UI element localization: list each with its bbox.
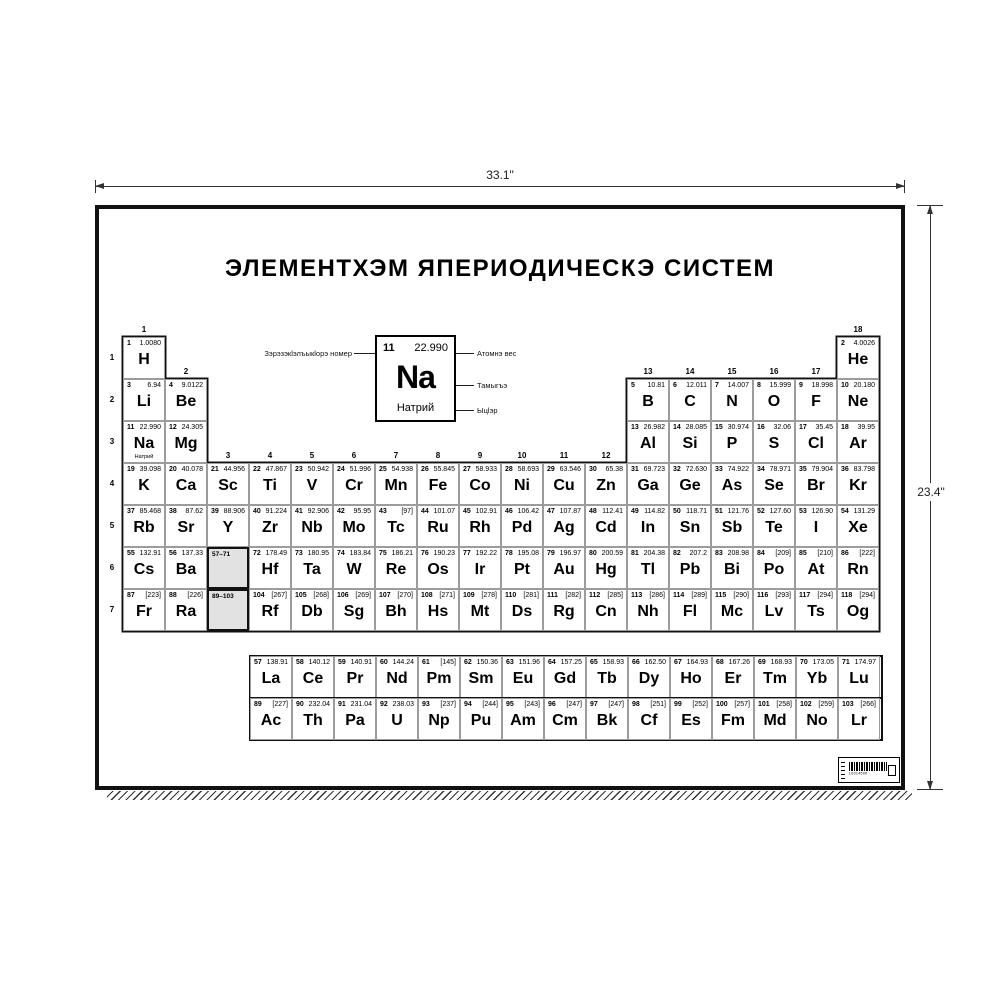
period-label: 3 — [105, 437, 119, 446]
element-symbol: Ir — [460, 561, 500, 579]
atomic-mass: 192.22 — [476, 550, 497, 557]
element-cell-si: 1428.085Si — [669, 421, 711, 463]
atomic-mass: [286] — [649, 592, 665, 599]
atomic-mass: 44.956 — [224, 466, 245, 473]
atomic-number: 41 — [295, 508, 303, 515]
element-symbol: Ne — [838, 393, 878, 411]
element-symbol: H — [124, 351, 164, 369]
element-symbol: No — [797, 712, 837, 730]
element-cell-ni: 2858.693Ni — [501, 463, 543, 505]
element-symbol: La — [251, 670, 291, 688]
group-label: 10 — [501, 451, 543, 460]
atomic-mass: 65.38 — [605, 466, 623, 473]
atomic-number: 72 — [253, 550, 261, 557]
atomic-number: 7 — [715, 382, 719, 389]
atomic-number: 35 — [799, 466, 807, 473]
element-cell-zr: 4091.224Zr — [249, 505, 291, 547]
atomic-mass: 106.42 — [518, 508, 539, 515]
element-cell-fe: 2655.845Fe — [417, 463, 459, 505]
dimension-line — [95, 186, 905, 187]
actinide-row: 89[227]Ac90232.04Th91231.04Pa92238.03U93… — [249, 697, 883, 741]
atomic-mass: 112.41 — [602, 508, 623, 515]
group-label: 16 — [753, 367, 795, 376]
atomic-mass: [278] — [481, 592, 497, 599]
dimension-width: 33.1" — [95, 168, 905, 198]
element-cell-la: 57138.91La — [250, 656, 292, 698]
atomic-mass: [145] — [440, 659, 456, 666]
atomic-number: 32 — [673, 466, 681, 473]
element-symbol: Hg — [586, 561, 626, 579]
atomic-number: 71 — [842, 659, 850, 666]
atomic-mass: [237] — [440, 701, 456, 708]
element-cell-pm: 61[145]Pm — [418, 656, 460, 698]
dimension-height-label: 23.4" — [908, 483, 954, 501]
element-symbol: Zn — [586, 477, 626, 495]
group-label: 1 — [123, 325, 165, 334]
atomic-number: 9 — [799, 382, 803, 389]
atomic-number: 10 — [841, 382, 849, 389]
atomic-mass: 208.98 — [728, 550, 749, 557]
atomic-mass: [293] — [775, 592, 791, 599]
atomic-mass: 200.59 — [602, 550, 623, 557]
atomic-number: 56 — [169, 550, 177, 557]
element-cell-ag: 47107.87Ag — [543, 505, 585, 547]
poster-title: ЭЛЕМЕНТХЭМ ЯПЕРИОДИЧЕСКЭ СИСТЕМ — [99, 255, 901, 283]
element-symbol: I — [796, 519, 836, 537]
element-symbol: P — [712, 435, 752, 453]
element-symbol: Pb — [670, 561, 710, 579]
atomic-number: 42 — [337, 508, 345, 515]
atomic-number: 102 — [800, 701, 812, 708]
element-cell-au: 79196.97Au — [543, 547, 585, 589]
element-symbol: Db — [292, 603, 332, 621]
atomic-number: 76 — [421, 550, 429, 557]
element-symbol: Sn — [670, 519, 710, 537]
atomic-number: 38 — [169, 508, 177, 515]
atomic-mass: 92.906 — [308, 508, 329, 515]
atomic-number: 49 — [631, 508, 639, 515]
atomic-mass: 95.95 — [353, 508, 371, 515]
atomic-number: 116 — [757, 592, 768, 599]
element-symbol: In — [628, 519, 668, 537]
element-cell-nd: 60144.24Nd — [376, 656, 418, 698]
element-symbol: Ba — [166, 561, 206, 579]
element-cell-sm: 62150.36Sm — [460, 656, 502, 698]
element-symbol: Ce — [293, 670, 333, 688]
atomic-number: 114 — [673, 592, 684, 599]
atomic-mass: 174.97 — [855, 659, 876, 666]
element-cell-pa: 91231.04Pa — [334, 698, 376, 740]
atomic-number: 44 — [421, 508, 429, 515]
atomic-number: 73 — [295, 550, 303, 557]
atomic-mass: [244] — [482, 701, 498, 708]
element-symbol: Si — [670, 435, 710, 453]
atomic-mass: 151.96 — [519, 659, 540, 666]
atomic-number: 21 — [211, 466, 219, 473]
atomic-number: 99 — [674, 701, 682, 708]
element-cell-yb: 70173.05Yb — [796, 656, 838, 698]
atomic-mass: [289] — [691, 592, 707, 599]
atomic-mass: 173.05 — [813, 659, 834, 666]
atomic-number: 66 — [632, 659, 640, 666]
element-cell-pd: 46106.42Pd — [501, 505, 543, 547]
atomic-mass: 150.36 — [477, 659, 498, 666]
atomic-mass: [269] — [355, 592, 371, 599]
atomic-mass: 12.011 — [686, 382, 707, 389]
period-label: 5 — [105, 521, 119, 530]
element-symbol: Ds — [502, 603, 542, 621]
element-cell-no: 102[259]No — [796, 698, 838, 740]
atomic-number: 34 — [757, 466, 765, 473]
element-symbol: F — [796, 393, 836, 411]
atomic-mass: 158.93 — [603, 659, 624, 666]
element-symbol: Os — [418, 561, 458, 579]
atomic-mass: 126.90 — [812, 508, 833, 515]
period-label: 7 — [105, 605, 119, 614]
atomic-mass: [266] — [860, 701, 876, 708]
atomic-number: 75 — [379, 550, 387, 557]
atomic-mass: 140.12 — [309, 659, 330, 666]
atomic-number: 83 — [715, 550, 723, 557]
atomic-number: 69 — [758, 659, 766, 666]
element-cell-be: 49.0122Be — [165, 379, 207, 421]
element-cell-ac: 89[227]Ac — [250, 698, 292, 740]
atomic-number: 79 — [547, 550, 555, 557]
group-label: 8 — [417, 451, 459, 460]
arrow-down-icon — [927, 781, 933, 790]
element-symbol: Zr — [250, 519, 290, 537]
element-cell-gd: 64157.25Gd — [544, 656, 586, 698]
element-symbol: Fm — [713, 712, 753, 730]
element-cell-rn: 86[222]Rn — [837, 547, 879, 589]
element-symbol: Ga — [628, 477, 668, 495]
atomic-mass: [257] — [734, 701, 750, 708]
element-symbol: Og — [838, 603, 878, 621]
element-cell-u: 92238.03U — [376, 698, 418, 740]
element-symbol: Rn — [838, 561, 878, 579]
lanthanide-row: 57138.91La58140.12Ce59140.91Pr60144.24Nd… — [249, 655, 883, 699]
element-cell-sb: 51121.76Sb — [711, 505, 753, 547]
element-cell-nb: 4192.906Nb — [291, 505, 333, 547]
element-cell-md: 101[258]Md — [754, 698, 796, 740]
element-symbol: Bh — [376, 603, 416, 621]
element-cell-zn: 3065.38Zn — [585, 463, 627, 505]
atomic-mass: 10.81 — [647, 382, 665, 389]
element-cell-dy: 66162.50Dy — [628, 656, 670, 698]
element-symbol: Tc — [376, 519, 416, 537]
group-label: 15 — [711, 367, 753, 376]
element-cell-er: 68167.26Er — [712, 656, 754, 698]
atomic-mass: 87.62 — [185, 508, 203, 515]
element-cell-ga: 3169.723Ga — [627, 463, 669, 505]
atomic-mass: [290] — [733, 592, 749, 599]
element-symbol: Yb — [797, 670, 837, 688]
atomic-number: 113 — [631, 592, 642, 599]
element-symbol: W — [334, 561, 374, 579]
element-cell-ti: 2247.867Ti — [249, 463, 291, 505]
element-symbol: Nd — [377, 670, 417, 688]
atomic-number: 88 — [169, 592, 177, 599]
element-symbol: Li — [124, 393, 164, 411]
atomic-number: 43 — [379, 508, 387, 515]
atomic-number: 33 — [715, 466, 723, 473]
atomic-mass: [209] — [775, 550, 791, 557]
element-cell-re: 75186.21Re — [375, 547, 417, 589]
atomic-mass: 35.45 — [815, 424, 833, 431]
atomic-number: 36 — [841, 466, 849, 473]
element-symbol: Eu — [503, 670, 543, 688]
atomic-number: 57 — [254, 659, 262, 666]
element-cell-ra: 88[226]Ra — [165, 589, 207, 631]
atomic-mass: 18.998 — [812, 382, 833, 389]
atomic-mass: 114.82 — [644, 508, 665, 515]
element-cell-mn: 2554.938Mn — [375, 463, 417, 505]
atomic-number: 68 — [716, 659, 724, 666]
element-symbol: Mn — [376, 477, 416, 495]
element-symbol: Sc — [208, 477, 248, 495]
element-symbol: Sb — [712, 519, 752, 537]
atomic-mass: 140.91 — [351, 659, 372, 666]
element-cell-h: 11.0080H — [123, 337, 165, 379]
group-label: 11 — [543, 451, 585, 460]
element-cell-ru: 44101.07Ru — [417, 505, 459, 547]
group-label: 12 — [585, 451, 627, 460]
atomic-mass: 58.933 — [476, 466, 497, 473]
atomic-mass: 138.91 — [267, 659, 288, 666]
atomic-number: 53 — [799, 508, 807, 515]
element-cell-at: 85[210]At — [795, 547, 837, 589]
element-cell-pb: 82207.2Pb — [669, 547, 711, 589]
atomic-mass: [294] — [859, 592, 875, 599]
element-cell-nh: 113[286]Nh — [627, 589, 669, 631]
atomic-number: 8 — [757, 382, 761, 389]
atomic-mass: 190.23 — [434, 550, 455, 557]
element-cell-pt: 78195.08Pt — [501, 547, 543, 589]
atomic-number: 70 — [800, 659, 808, 666]
atomic-mass: [281] — [523, 592, 539, 599]
element-symbol: Cm — [545, 712, 585, 730]
poster: ЭЛЕМЕНТХЭМ ЯПЕРИОДИЧЕСКЭ СИСТЕМ 11 22.99… — [95, 205, 905, 790]
element-symbol: Nh — [628, 603, 668, 621]
element-cell-ts: 117[294]Ts — [795, 589, 837, 631]
element-symbol: Am — [503, 712, 543, 730]
atomic-mass: [226] — [187, 592, 203, 599]
atomic-mass: [294] — [817, 592, 833, 599]
element-cell-fm: 100[257]Fm — [712, 698, 754, 740]
atomic-mass: 9.0122 — [182, 382, 203, 389]
atomic-number: 18 — [841, 424, 849, 431]
element-symbol: Mo — [334, 519, 374, 537]
element-symbol: Cr — [334, 477, 374, 495]
atomic-mass: [223] — [145, 592, 161, 599]
atomic-number: 25 — [379, 466, 387, 473]
element-cell-lu: 71174.97Lu — [838, 656, 880, 698]
element-symbol: S — [754, 435, 794, 453]
atomic-mass: 83.798 — [854, 466, 875, 473]
element-cell-sr: 3887.62Sr — [165, 505, 207, 547]
placeholder-range: 89–103 — [212, 593, 234, 600]
element-symbol: Ni — [502, 477, 542, 495]
element-cell-na: 1122.990NaНатрий — [123, 421, 165, 463]
element-cell-rb: 3785.468Rb — [123, 505, 165, 547]
element-cell-bk: 97[247]Bk — [586, 698, 628, 740]
element-symbol: Es — [671, 712, 711, 730]
element-symbol: Pm — [419, 670, 459, 688]
atomic-number: 110 — [505, 592, 516, 599]
element-symbol: U — [377, 712, 417, 730]
element-symbol: Np — [419, 712, 459, 730]
element-cell-in: 49114.82In — [627, 505, 669, 547]
atomic-mass: 121.76 — [728, 508, 749, 515]
element-cell-cf: 98[251]Cf — [628, 698, 670, 740]
atomic-number: 5 — [631, 382, 635, 389]
element-cell-w: 74183.84W — [333, 547, 375, 589]
element-symbol: Se — [754, 477, 794, 495]
atomic-number: 31 — [631, 466, 639, 473]
element-symbol: Cd — [586, 519, 626, 537]
element-cell-po: 84[209]Po — [753, 547, 795, 589]
element-symbol: Ho — [671, 670, 711, 688]
atomic-number: 108 — [421, 592, 433, 599]
atomic-mass: 178.49 — [266, 550, 287, 557]
atomic-number: 50 — [673, 508, 681, 515]
element-cell-rg: 111[282]Rg — [543, 589, 585, 631]
group-label: 9 — [459, 451, 501, 460]
atomic-number: 106 — [337, 592, 349, 599]
element-symbol: Rb — [124, 519, 164, 537]
element-cell-mt: 109[278]Mt — [459, 589, 501, 631]
group-label: 18 — [837, 325, 879, 334]
atomic-number: 107 — [379, 592, 391, 599]
atomic-number: 1 — [127, 340, 131, 347]
element-symbol: Cu — [544, 477, 584, 495]
element-symbol: Pr — [335, 670, 375, 688]
element-cell-o: 815.999O — [753, 379, 795, 421]
period-label: 6 — [105, 563, 119, 572]
element-symbol: Sg — [334, 603, 374, 621]
atomic-mass: 15.999 — [770, 382, 791, 389]
atomic-mass: 39.098 — [140, 466, 161, 473]
element-cell-cm: 96[247]Cm — [544, 698, 586, 740]
element-cell-li: 36.94Li — [123, 379, 165, 421]
element-symbol: Sr — [166, 519, 206, 537]
element-symbol: Pd — [502, 519, 542, 537]
atomic-number: 29 — [547, 466, 555, 473]
element-cell-rh: 45102.91Rh — [459, 505, 501, 547]
placeholder-cell: 57–71 — [207, 547, 249, 589]
atomic-mass: [251] — [650, 701, 666, 708]
atomic-number: 45 — [463, 508, 471, 515]
atomic-mass: 162.50 — [645, 659, 666, 666]
atomic-number: 15 — [715, 424, 723, 431]
atomic-number: 103 — [842, 701, 854, 708]
element-symbol: Fl — [670, 603, 710, 621]
element-cell-og: 118[294]Og — [837, 589, 879, 631]
arrow-left-icon — [95, 183, 104, 189]
atomic-number: 81 — [631, 550, 639, 557]
arrow-right-icon — [896, 183, 905, 189]
element-cell-fl: 114[289]Fl — [669, 589, 711, 631]
atomic-mass: 186.21 — [392, 550, 413, 557]
element-symbol: As — [712, 477, 752, 495]
element-cell-rf: 104[267]Rf — [249, 589, 291, 631]
element-cell-hg: 80200.59Hg — [585, 547, 627, 589]
element-symbol: O — [754, 393, 794, 411]
element-cell-es: 99[252]Es — [670, 698, 712, 740]
atomic-number: 17 — [799, 424, 807, 431]
atomic-number: 51 — [715, 508, 723, 515]
element-symbol: Ts — [796, 603, 836, 621]
atomic-number: 94 — [464, 701, 472, 708]
atomic-number: 52 — [757, 508, 765, 515]
element-cell-i: 53126.90I — [795, 505, 837, 547]
atomic-mass: 196.97 — [560, 550, 581, 557]
atomic-mass: 32.06 — [773, 424, 791, 431]
element-symbol: Nb — [292, 519, 332, 537]
atomic-number: 80 — [589, 550, 597, 557]
atomic-number: 37 — [127, 508, 135, 515]
element-symbol: Pa — [335, 712, 375, 730]
element-cell-cr: 2451.996Cr — [333, 463, 375, 505]
atomic-mass: [258] — [776, 701, 792, 708]
element-symbol: Re — [376, 561, 416, 579]
atomic-number: 19 — [127, 466, 135, 473]
element-symbol: Xe — [838, 519, 878, 537]
atomic-number: 98 — [632, 701, 640, 708]
element-cell-hf: 72178.49Hf — [249, 547, 291, 589]
atomic-mass: 28.085 — [686, 424, 707, 431]
atomic-mass: 54.938 — [392, 466, 413, 473]
group-label: 13 — [627, 367, 669, 376]
element-symbol: Ag — [544, 519, 584, 537]
atomic-number: 12 — [169, 424, 177, 431]
atomic-number: 117 — [799, 592, 810, 599]
element-cell-p: 1530.974P — [711, 421, 753, 463]
atomic-mass: [271] — [439, 592, 455, 599]
element-cell-cn: 112[285]Cn — [585, 589, 627, 631]
element-symbol: Cf — [629, 712, 669, 730]
element-symbol: Fe — [418, 477, 458, 495]
element-cell-tc: 43[97]Tc — [375, 505, 417, 547]
element-cell-ta: 73180.95Ta — [291, 547, 333, 589]
element-cell-xe: 54131.29Xe — [837, 505, 879, 547]
barcode-text: L0014500 — [849, 772, 867, 776]
atomic-number: 97 — [590, 701, 598, 708]
element-cell-ce: 58140.12Ce — [292, 656, 334, 698]
element-cell-lv: 116[293]Lv — [753, 589, 795, 631]
dimension-width-label: 33.1" — [95, 168, 905, 182]
atomic-number: 39 — [211, 508, 219, 515]
element-symbol: Ca — [166, 477, 206, 495]
element-symbol: Tm — [755, 670, 795, 688]
atomic-number: 93 — [422, 701, 430, 708]
dimension-height: 23.4" — [905, 205, 960, 790]
atomic-mass: 74.922 — [728, 466, 749, 473]
atomic-number: 58 — [296, 659, 304, 666]
element-cell-cs: 55132.91Cs — [123, 547, 165, 589]
periodic-table: 11.0080H24.0026He36.94Li49.0122Be510.81B… — [123, 337, 879, 631]
atomic-number: 24 — [337, 466, 345, 473]
element-symbol: K — [124, 477, 164, 495]
atomic-number: 111 — [547, 592, 558, 599]
atomic-number: 28 — [505, 466, 513, 473]
group-label: 6 — [333, 451, 375, 460]
element-symbol: Te — [754, 519, 794, 537]
group-label: 5 — [291, 451, 333, 460]
atomic-mass: 72.630 — [686, 466, 707, 473]
atomic-number: 54 — [841, 508, 849, 515]
atomic-mass: [247] — [608, 701, 624, 708]
